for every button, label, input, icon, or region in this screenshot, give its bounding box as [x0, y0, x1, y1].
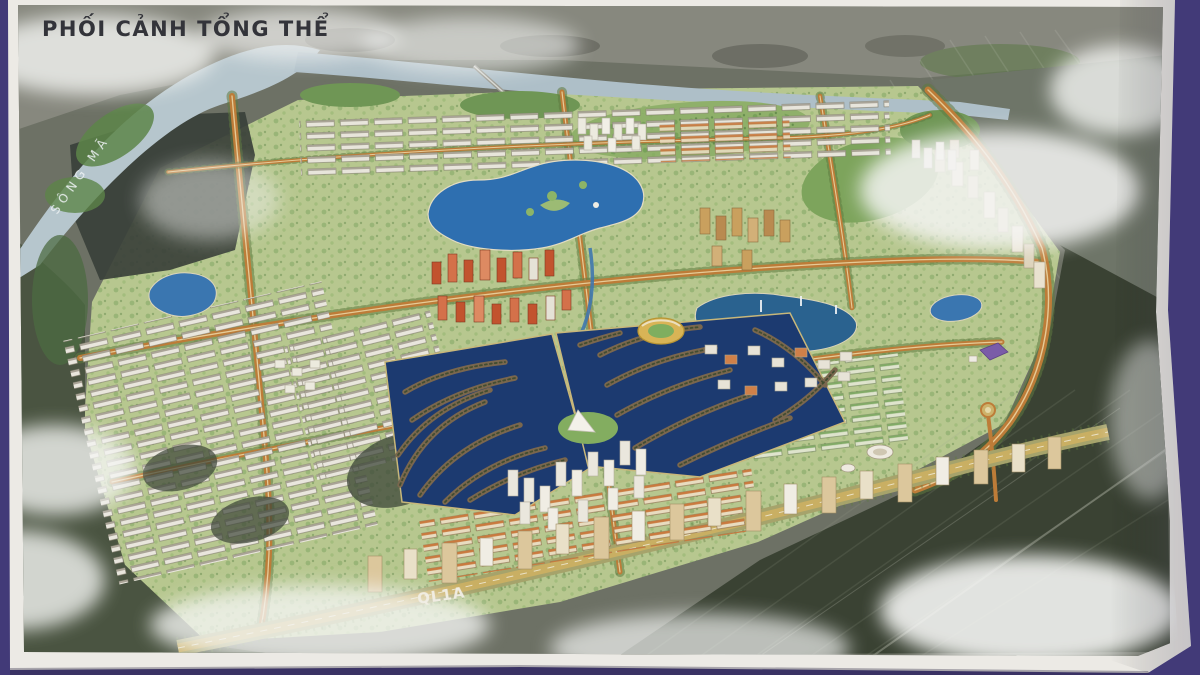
masterplan-render: SÔNG MÃ QL1A PHỐI CẢNH TỔNG THỂ: [0, 2, 1190, 675]
screenshot-of-masterplan-poster: SÔNG MÃ QL1A PHỐI CẢNH TỔNG THỂ: [0, 0, 1200, 675]
stadium-icon: [638, 318, 684, 344]
poster-title: PHỐI CẢNH TỔNG THỂ: [42, 12, 330, 41]
poster-photo: SÔNG MÃ QL1A PHỐI CẢNH TỔNG THỂ: [0, 0, 1200, 675]
roundabout-icon: [981, 403, 995, 417]
